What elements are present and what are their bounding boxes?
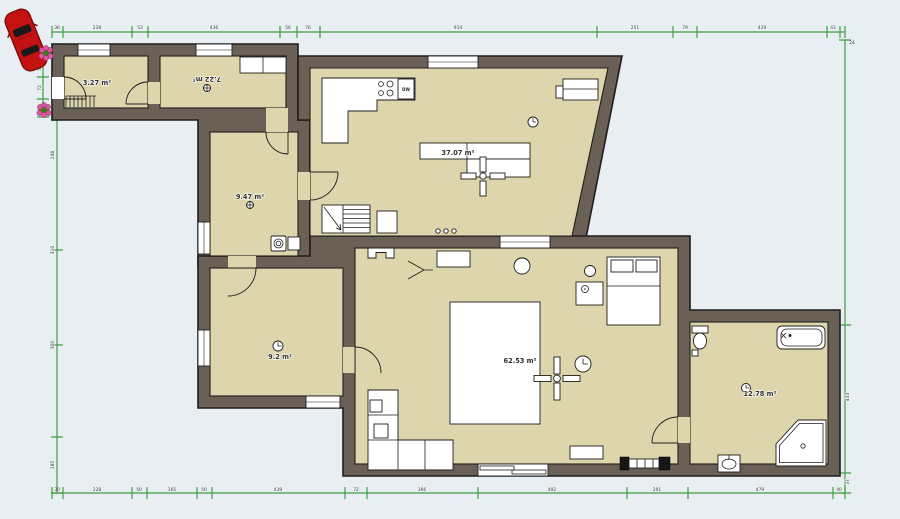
dim-label: 185 xyxy=(50,461,56,470)
window-middle-bottom[interactable] xyxy=(306,396,340,408)
dim-label: 429 xyxy=(758,25,767,31)
ceiling-light-icon xyxy=(203,85,211,92)
room-area-label-kitchen: 37.07 m² xyxy=(442,149,475,157)
dim-label: 201 xyxy=(653,487,662,493)
dim-label: 76 xyxy=(305,25,311,31)
radiator-main[interactable] xyxy=(620,457,670,470)
dim-label: 72 xyxy=(37,85,43,91)
dim-label: 436 xyxy=(210,25,219,31)
dim-label: 300 xyxy=(50,341,56,350)
room-area-label-hall: 9.47 m² xyxy=(236,193,264,201)
window-middle-left[interactable] xyxy=(198,330,210,366)
dim-label: 53 xyxy=(137,25,143,31)
dim-label: 56 xyxy=(285,25,291,31)
window-kitchen-top[interactable] xyxy=(428,56,478,68)
dishwasher[interactable]: DW xyxy=(398,79,414,99)
cabinet-kitchen[interactable] xyxy=(377,211,397,233)
patio-door[interactable] xyxy=(478,464,548,476)
bottles-icon xyxy=(436,229,456,233)
floor-plan-canvas[interactable]: 36 228 53 436 56 76 914 251 79 429 43 24… xyxy=(0,0,900,519)
room-area-label-entry: 3.27 m² xyxy=(83,79,111,87)
dim-label: 433 xyxy=(845,393,851,402)
dim-label: 248 xyxy=(50,151,56,160)
wall-clock-icon[interactable] xyxy=(273,341,283,351)
side-table[interactable] xyxy=(437,251,470,267)
wall-clock-icon[interactable] xyxy=(528,117,538,127)
stairs[interactable] xyxy=(322,205,370,233)
svg-text:DW: DW xyxy=(402,87,410,92)
stool[interactable] xyxy=(514,258,530,274)
dim-label: 40 xyxy=(836,487,842,493)
dim-label: 165 xyxy=(168,487,177,493)
window-entry-top[interactable] xyxy=(78,44,110,56)
dim-label: 50 xyxy=(136,487,142,493)
dim-label: 251 xyxy=(631,25,640,31)
window-hall-left[interactable] xyxy=(198,222,210,254)
dim-label-corner: 24 xyxy=(849,40,855,46)
dim-label: 43 xyxy=(830,25,836,31)
flower-plant[interactable] xyxy=(37,102,51,117)
room-area-label-bathroom: 12.78 m² xyxy=(744,390,777,398)
dim-label: 228 xyxy=(93,487,102,493)
washbasin[interactable] xyxy=(718,455,740,472)
room-area-label-main: 62.53 m² xyxy=(504,357,537,365)
flower-plant[interactable] xyxy=(39,45,53,60)
window-hallway-top[interactable] xyxy=(196,44,232,56)
dim-label: 37 xyxy=(845,479,851,485)
dim-label: 50 xyxy=(201,487,207,493)
dim-label: 439 xyxy=(274,487,283,493)
dim-label: 366 xyxy=(418,487,427,493)
room-area-label-middle: 9.2 m² xyxy=(268,353,292,361)
room-area-label-hallway: 7.22 m² xyxy=(193,75,221,83)
wall-clock-icon[interactable] xyxy=(575,356,591,372)
room-middle[interactable] xyxy=(210,268,343,396)
dim-label: 36 xyxy=(54,25,60,31)
cabinet-hall[interactable] xyxy=(288,237,300,250)
double-bed[interactable] xyxy=(607,257,660,325)
dim-label: 79 xyxy=(682,25,688,31)
window-kitchen-passthrough[interactable] xyxy=(500,236,550,248)
tv-bench[interactable] xyxy=(570,446,603,459)
ceiling-light-icon xyxy=(246,202,254,209)
dim-label: 228 xyxy=(93,25,102,31)
dim-label: 914 xyxy=(454,25,463,31)
wardrobe-hallway[interactable] xyxy=(240,57,286,73)
dim-label: 310 xyxy=(50,246,56,255)
dim-label: 492 xyxy=(548,487,557,493)
dim-label: 72 xyxy=(353,487,359,493)
washing-machine[interactable] xyxy=(271,236,286,251)
bathtub[interactable] xyxy=(777,326,825,349)
dim-label: 479 xyxy=(756,487,765,493)
